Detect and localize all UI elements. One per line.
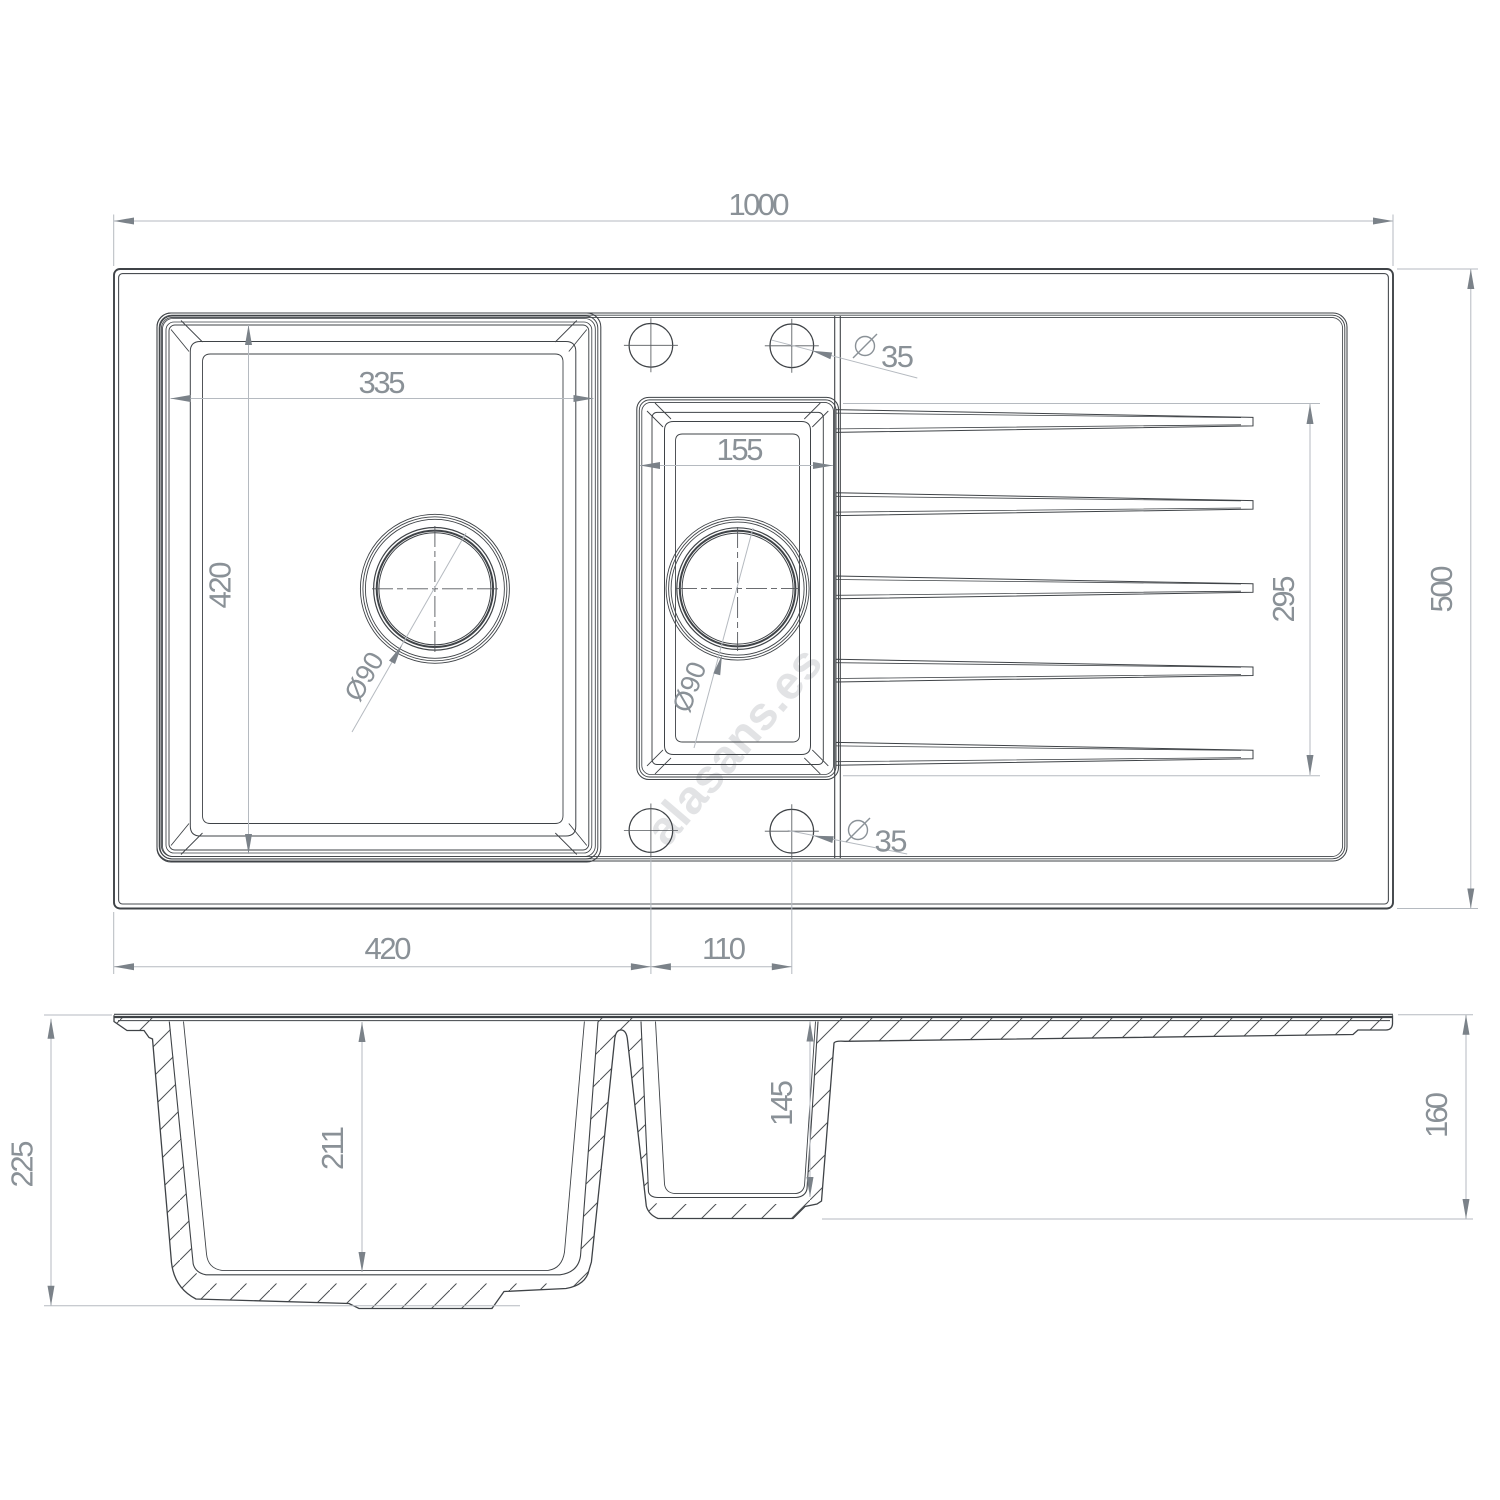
svg-text:420: 420 bbox=[203, 562, 238, 609]
svg-text:225: 225 bbox=[5, 1141, 40, 1188]
svg-text:35: 35 bbox=[875, 824, 908, 859]
svg-text:500: 500 bbox=[1424, 566, 1459, 613]
svg-text:110: 110 bbox=[702, 931, 746, 966]
svg-text:295: 295 bbox=[1266, 576, 1301, 623]
svg-text:155: 155 bbox=[717, 432, 764, 467]
svg-text:145: 145 bbox=[764, 1080, 799, 1126]
svg-text:420: 420 bbox=[365, 931, 412, 966]
svg-text:335: 335 bbox=[359, 365, 406, 400]
svg-text:211: 211 bbox=[315, 1126, 350, 1170]
svg-text:160: 160 bbox=[1419, 1092, 1454, 1138]
svg-text:35: 35 bbox=[881, 339, 914, 374]
svg-text:1000: 1000 bbox=[729, 187, 790, 222]
